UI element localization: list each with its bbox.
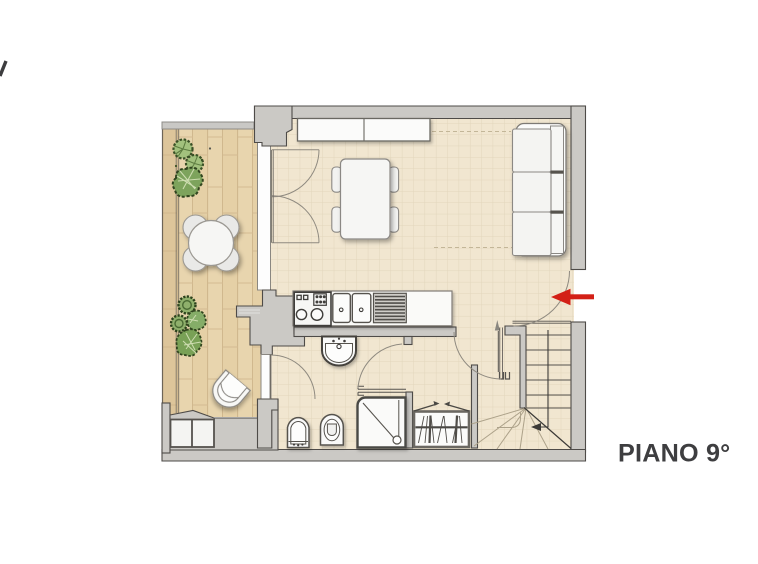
svg-text:PIANO 9°: PIANO 9° <box>618 440 730 468</box>
